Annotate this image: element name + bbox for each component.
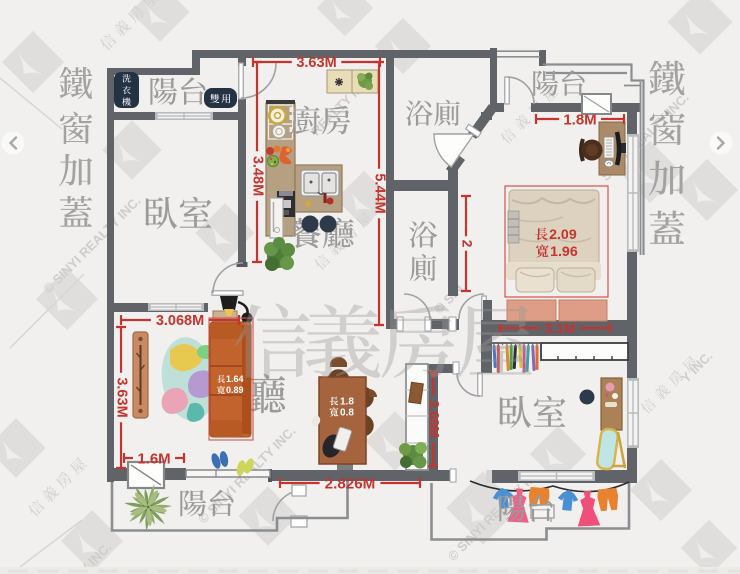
svg-text:3.48M: 3.48M — [249, 156, 265, 196]
svg-text:3.068M: 3.068M — [156, 313, 204, 329]
svg-text:0.89: 0.89 — [226, 385, 244, 395]
svg-text:1.6M: 1.6M — [137, 450, 170, 467]
svg-text:1.8: 1.8 — [340, 397, 354, 408]
svg-text:1.64: 1.64 — [226, 374, 244, 384]
svg-text:3.63M: 3.63M — [296, 55, 336, 71]
svg-text:2.69M: 2.69M — [427, 400, 442, 438]
svg-text:5.44M: 5.44M — [371, 173, 387, 213]
svg-text:1.8M: 1.8M — [563, 111, 596, 128]
svg-text:3.1M: 3.1M — [544, 320, 575, 336]
svg-text:2.826M: 2.826M — [325, 476, 376, 493]
svg-text:1.96: 1.96 — [550, 244, 578, 260]
svg-text:0.8: 0.8 — [340, 408, 354, 419]
svg-text:2: 2 — [460, 240, 476, 248]
svg-text:2.09: 2.09 — [549, 227, 577, 243]
svg-text:3.63M: 3.63M — [113, 377, 129, 417]
